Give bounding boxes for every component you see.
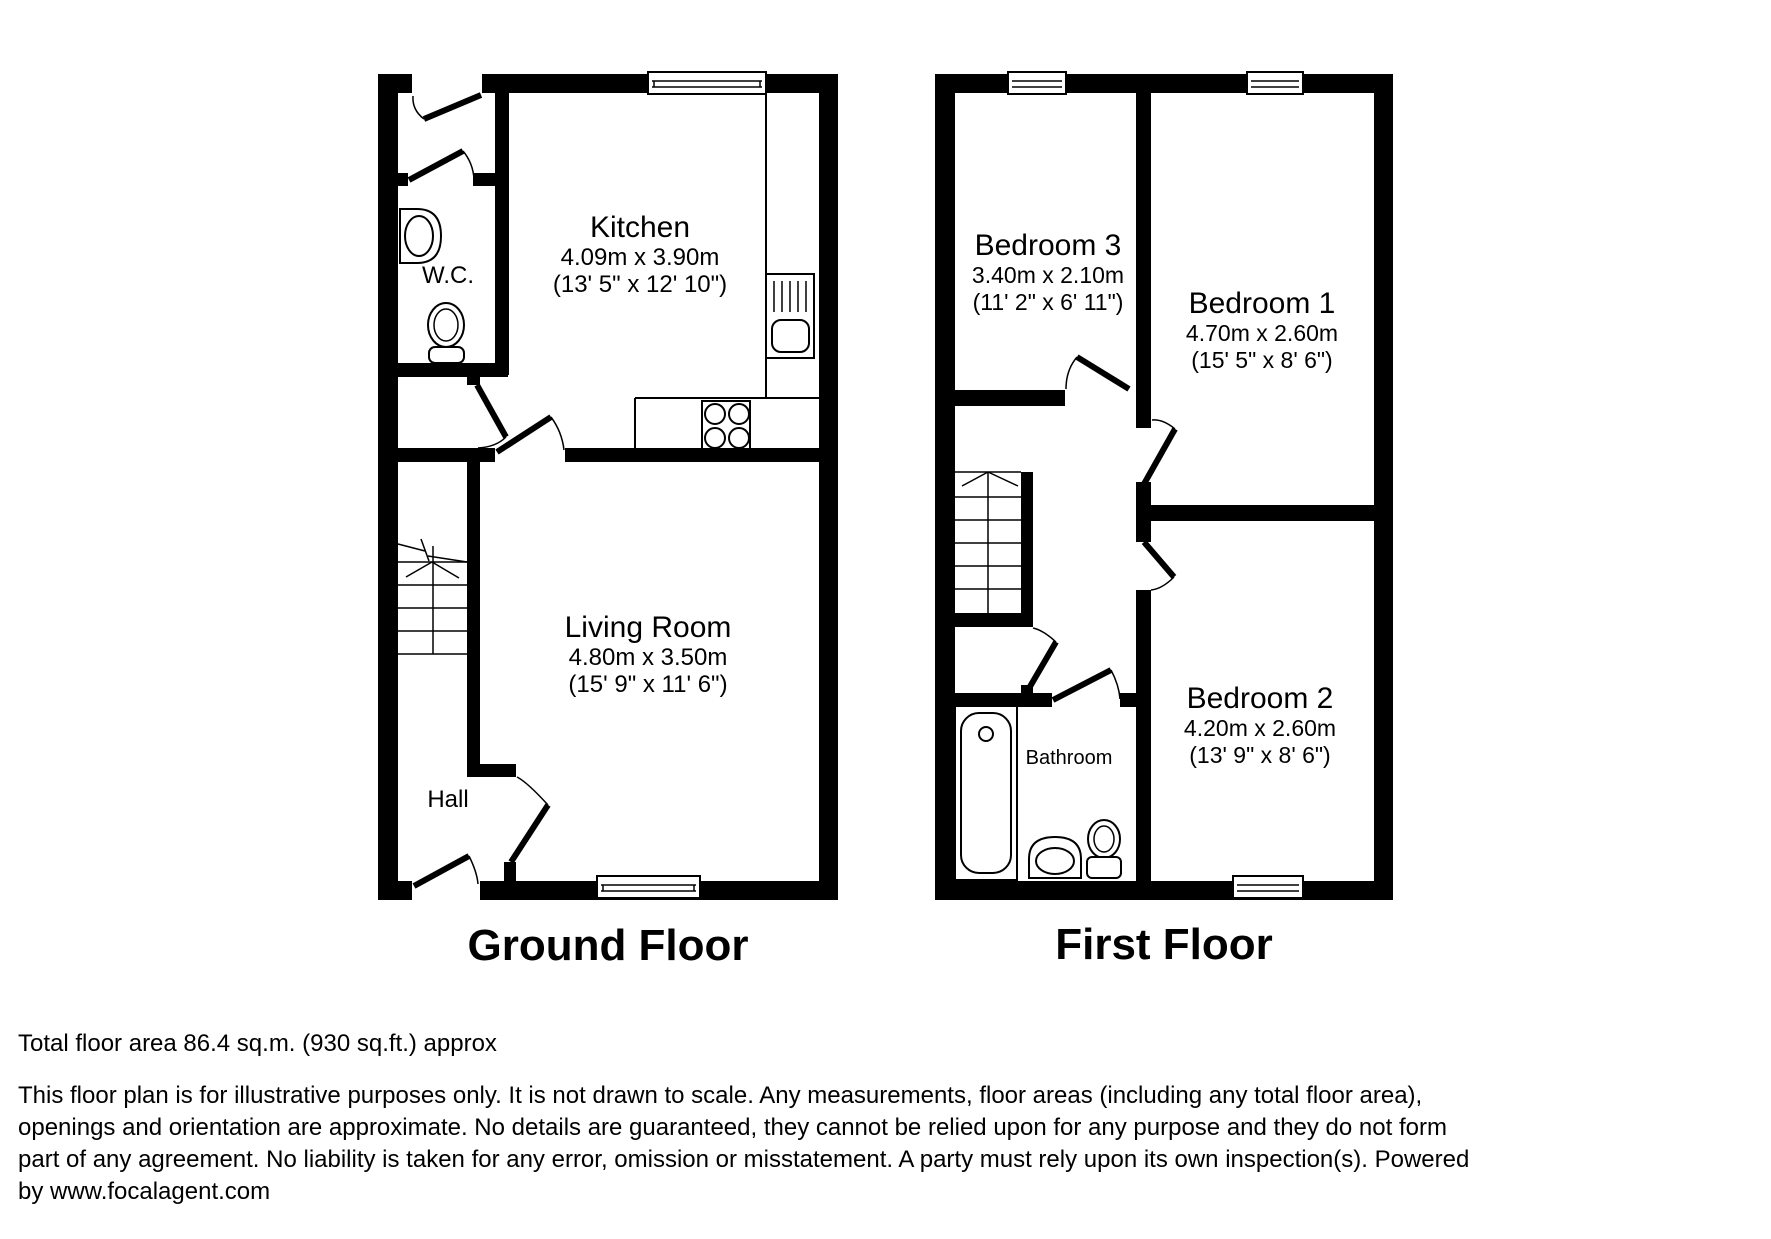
disclaimer-line: part of any agreement. No liability is t… xyxy=(18,1144,1758,1176)
floorplan-page: Kitchen 4.09m x 3.90m (13' 5" x 12' 10")… xyxy=(0,0,1771,1239)
living-room-label: Living Room 4.80m x 3.50m (15' 9" x 11' … xyxy=(565,611,732,698)
ff-bedroom2-window xyxy=(1233,876,1303,898)
gf-porch-opening xyxy=(412,73,482,94)
first-floor-plan xyxy=(935,72,1393,900)
ff-stairs-icon xyxy=(955,472,1021,613)
hall-label: Hall xyxy=(427,787,468,813)
room-metric: 4.70m x 2.60m xyxy=(1186,320,1338,347)
room-metric: 4.09m x 3.90m xyxy=(553,244,727,271)
ground-floor-plan xyxy=(378,72,838,901)
bathroom-toilet-icon xyxy=(1087,820,1121,878)
gf-exterior-walls xyxy=(378,74,838,900)
room-name: Living Room xyxy=(565,611,732,644)
total-floor-area: Total floor area 86.4 sq.m. (930 sq.ft.)… xyxy=(18,1028,497,1060)
first-floor-title: First Floor xyxy=(1055,920,1273,970)
wc-basin-icon xyxy=(400,209,441,263)
ground-floor-title: Ground Floor xyxy=(467,921,748,971)
disclaimer-line: openings and orientation are approximate… xyxy=(18,1112,1758,1144)
bathroom-label: Bathroom xyxy=(1026,747,1113,769)
bedroom3-label: Bedroom 3 3.40m x 2.10m (11' 2" x 6' 11"… xyxy=(972,229,1124,316)
ff-bathroom-door xyxy=(1053,670,1120,700)
wc-label: W.C. xyxy=(422,263,474,289)
ff-bedroom1-window xyxy=(1247,72,1303,94)
room-imperial: (11' 2" x 6' 11") xyxy=(972,289,1124,316)
gf-inner-door xyxy=(409,151,474,180)
room-name: Bedroom 2 xyxy=(1184,682,1336,715)
room-imperial: (13' 5" x 12' 10") xyxy=(553,271,727,298)
room-metric: 4.80m x 3.50m xyxy=(565,644,732,671)
room-imperial: (15' 5" x 8' 6") xyxy=(1186,347,1338,374)
wc-toilet-icon xyxy=(428,303,464,363)
disclaimer-line: This floor plan is for illustrative purp… xyxy=(18,1080,1758,1112)
ff-bedroom2-door xyxy=(1144,542,1174,590)
room-imperial: (15' 9" x 11' 6") xyxy=(565,671,732,698)
kitchen-label: Kitchen 4.09m x 3.90m (13' 5" x 12' 10") xyxy=(553,211,727,298)
gf-living-window xyxy=(597,876,700,898)
ff-bedroom3-door xyxy=(1066,357,1129,389)
room-name: Kitchen xyxy=(553,211,727,244)
bathroom-basin-icon xyxy=(1029,837,1081,878)
gf-stairs-icon xyxy=(398,539,467,654)
disclaimer-line: by www.focalagent.com xyxy=(18,1176,1758,1208)
room-metric: 4.20m x 2.60m xyxy=(1184,715,1336,742)
kitchen-hob-icon xyxy=(702,401,750,449)
gf-wc-door xyxy=(477,385,506,448)
gf-living-door xyxy=(511,777,548,862)
kitchen-sink-icon xyxy=(766,274,814,358)
disclaimer: This floor plan is for illustrative purp… xyxy=(18,1080,1758,1208)
room-name: Bedroom 1 xyxy=(1186,287,1338,320)
gf-porch-door xyxy=(413,95,481,119)
room-metric: 3.40m x 2.10m xyxy=(972,262,1124,289)
ff-landing-door xyxy=(1028,628,1056,690)
gf-kitchen-window xyxy=(648,72,766,94)
bedroom2-label: Bedroom 2 4.20m x 2.60m (13' 9" x 8' 6") xyxy=(1184,682,1336,769)
bath-icon xyxy=(955,706,1017,880)
bedroom1-label: Bedroom 1 4.70m x 2.60m (15' 5" x 8' 6") xyxy=(1186,287,1338,374)
room-name: Bedroom 3 xyxy=(972,229,1124,262)
ff-bedroom3-window xyxy=(1008,72,1066,94)
room-imperial: (13' 9" x 8' 6") xyxy=(1184,742,1336,769)
ff-bedroom1-door xyxy=(1144,420,1175,484)
